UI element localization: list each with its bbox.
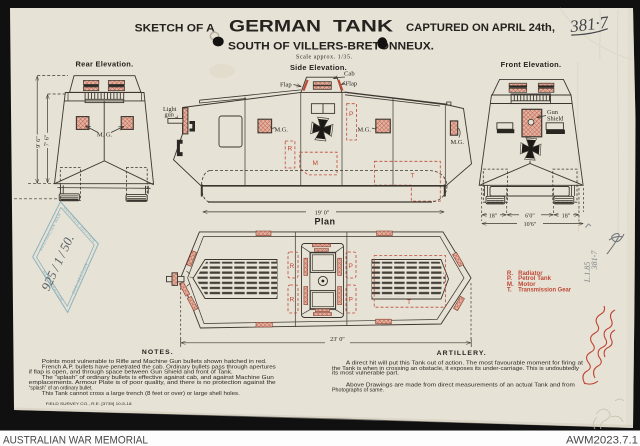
svg-text:M.G.: M.G. bbox=[358, 127, 372, 134]
svg-text:Scale approx. 1/35.: Scale approx. 1/35. bbox=[296, 55, 353, 61]
svg-text:GERMAN: GERMAN bbox=[229, 17, 321, 35]
svg-text:T: T bbox=[407, 299, 411, 306]
svg-text:R: R bbox=[290, 263, 295, 270]
svg-text:P: P bbox=[349, 111, 354, 118]
svg-text:M.G.: M.G. bbox=[451, 139, 465, 146]
svg-text:Rear Elevation.: Rear Elevation. bbox=[76, 60, 134, 69]
svg-text:T: T bbox=[411, 173, 415, 180]
svg-text:Front Elevation.: Front Elevation. bbox=[501, 60, 562, 69]
svg-text:M: M bbox=[313, 160, 319, 167]
svg-text:SOUTH OF VILLERS-BRETONNEUX.: SOUTH OF VILLERS-BRETONNEUX. bbox=[228, 40, 434, 52]
svg-text:AUSTRALIAN WAR MEMORIAL: AUSTRALIAN WAR MEMORIAL bbox=[3, 435, 148, 446]
svg-text:NOTES.: NOTES. bbox=[142, 349, 174, 356]
svg-text:23′ 0″: 23′ 0″ bbox=[330, 336, 345, 343]
svg-text:M.G.: M.G. bbox=[275, 127, 289, 134]
svg-text:18″: 18″ bbox=[489, 213, 498, 219]
svg-text:T.: T. bbox=[507, 287, 512, 294]
svg-text:CAPTURED ON APRIL 24th,: CAPTURED ON APRIL 24th, bbox=[406, 22, 555, 34]
svg-text:10′6″: 10′6″ bbox=[524, 222, 537, 228]
svg-text:18″: 18″ bbox=[562, 213, 571, 219]
svg-text:FIELD SURVEY CO., R.E. [373: FIELD SURVEY CO., R.E. [3739] 10-5-18 bbox=[46, 401, 133, 406]
svg-text:P: P bbox=[349, 263, 354, 270]
svg-text:TANK: TANK bbox=[333, 17, 393, 35]
svg-text:Photographs of same.: Photographs of same. bbox=[332, 388, 384, 394]
svg-text:SKETCH OF A: SKETCH OF A bbox=[135, 22, 215, 34]
svg-text:Side Elevation.: Side Elevation. bbox=[290, 63, 347, 72]
svg-text:Transmission Gear: Transmission Gear bbox=[518, 287, 572, 294]
svg-text:its most vulnerable part.: its most vulnerable part. bbox=[332, 371, 399, 377]
svg-text:Plan: Plan bbox=[314, 217, 335, 227]
svg-text:Cab: Cab bbox=[344, 71, 355, 78]
svg-text:7′ 6″: 7′ 6″ bbox=[44, 134, 51, 146]
svg-text:Flap: Flap bbox=[280, 82, 292, 89]
svg-text:Flap: Flap bbox=[346, 81, 358, 88]
svg-text:19′ 0″: 19′ 0″ bbox=[315, 210, 330, 217]
svg-text:6′0″: 6′0″ bbox=[525, 213, 535, 219]
svg-text:This Tank cannot cross a large: This Tank cannot cross a large trench (8… bbox=[42, 391, 240, 397]
svg-text:R: R bbox=[290, 297, 295, 304]
svg-text:381-7: 381-7 bbox=[590, 250, 599, 271]
svg-text:P: P bbox=[349, 297, 354, 304]
svg-text:gun: gun bbox=[165, 112, 174, 119]
svg-text:9′ 6″: 9′ 6″ bbox=[35, 136, 42, 148]
svg-text:ARTILLERY.: ARTILLERY. bbox=[437, 350, 487, 357]
svg-text:M. G.: M. G. bbox=[97, 132, 112, 139]
svg-text:Shield: Shield bbox=[547, 115, 564, 122]
svg-text:AWM2023.7.1: AWM2023.7.1 bbox=[566, 435, 638, 446]
svg-text:R: R bbox=[288, 146, 293, 153]
